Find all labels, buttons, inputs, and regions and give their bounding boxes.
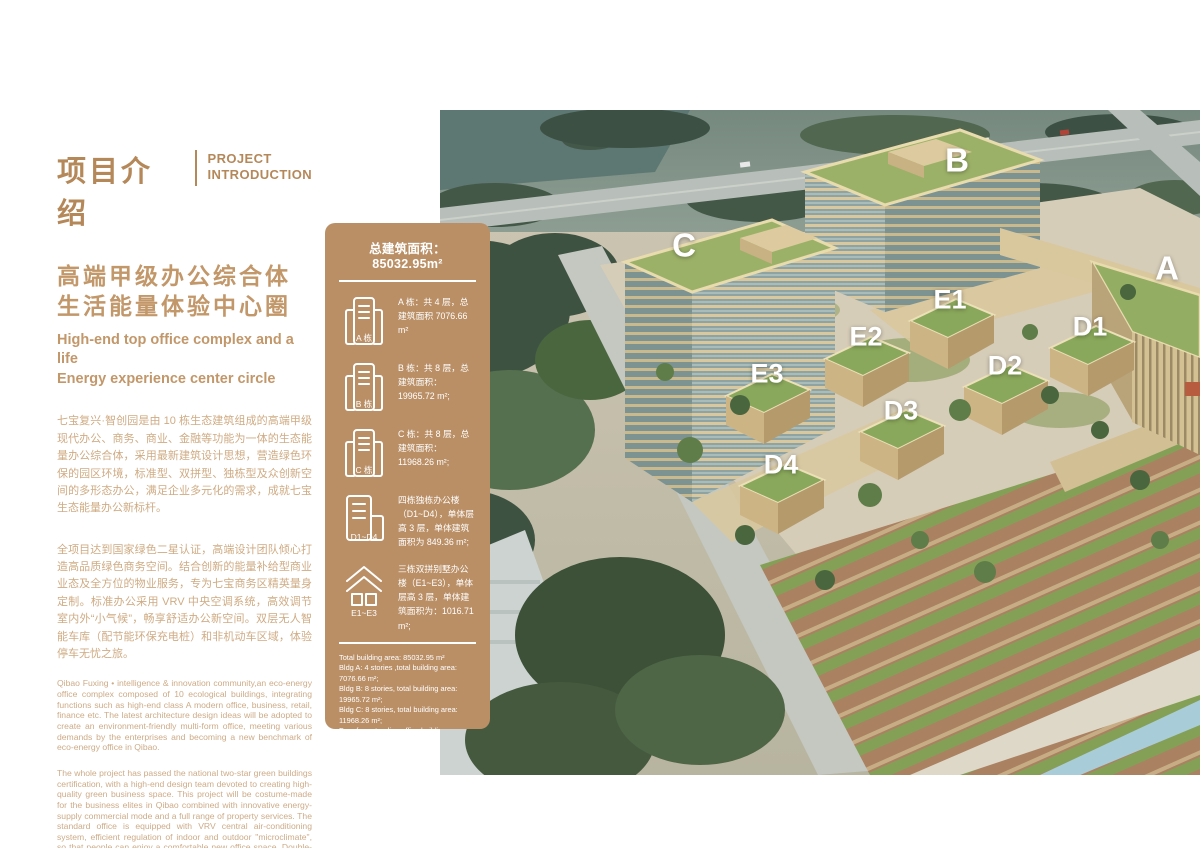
section-title-en-line1: PROJECT bbox=[208, 151, 312, 167]
tower-icon-label: A 栋 bbox=[356, 332, 372, 344]
villa-icon-label: E1~E3 bbox=[351, 608, 377, 618]
section-title: 项目介绍 PROJECT INTRODUCTION bbox=[57, 148, 312, 232]
subtitle-zh: 高端甲级办公综合体 生活能量体验中心圈 bbox=[57, 261, 312, 322]
tower-icon-label: B 栋 bbox=[356, 398, 373, 410]
subtitle-zh-line1: 高端甲级办公综合体 bbox=[57, 263, 291, 289]
twin-building-icon-label: D1~D4 bbox=[351, 532, 378, 542]
panel-divider-bottom bbox=[339, 642, 476, 644]
aerial-rendering: B C A E1 E2 E3 D1 D2 D3 D4 bbox=[440, 110, 1200, 775]
panel-item-text: 三栋双拼别墅办公楼（E1~E3），单体层高 3 层，单体建筑面积为：1016.7… bbox=[398, 562, 476, 632]
building-label-c: C bbox=[672, 229, 696, 262]
panel-item-text: A 栋：共 4 层，总建筑面积 7076.66 m² bbox=[398, 295, 476, 337]
panel-divider-top bbox=[339, 280, 476, 282]
subtitle-en: High-end top office complex and a life E… bbox=[57, 331, 312, 390]
section-title-en: PROJECT INTRODUCTION bbox=[208, 151, 312, 184]
panel-footer-line: Bldg C: 8 stories, total building area: … bbox=[339, 705, 476, 726]
subtitle-zh-line2: 生活能量体验中心圈 bbox=[57, 293, 291, 319]
paragraph-zh-2: 全项目达到国家绿色二星认证，高端设计团队倾心打造高品质绿色商务空间。结合创新的能… bbox=[57, 542, 312, 664]
building-label-e1: E1 bbox=[933, 287, 966, 314]
tower-icon-label: C 栋 bbox=[355, 464, 372, 476]
building-label-e2: E2 bbox=[849, 324, 882, 351]
panel-item-text: 四栋独栋办公楼（D1~D4），单体层高 3 层，单体建筑面积为 849.36 m… bbox=[398, 493, 476, 549]
twin-building-icon: D1~D4 bbox=[339, 492, 389, 546]
panel-item-buildings-e: E1~E3 三栋双拼别墅办公楼（E1~E3），单体层高 3 层，单体建筑面积为：… bbox=[339, 561, 476, 632]
panel-item-building-c: C 栋 C 栋：共 8 层，总建筑面积：11968.26 m²; bbox=[339, 426, 476, 480]
paragraph-en-1: Qibao Fuxing • intelligence & innovation… bbox=[57, 678, 312, 753]
subtitle-en-line2: Energy experience center circle bbox=[57, 371, 275, 387]
panel-footer-line: Bldg B: 8 stories, total building area: … bbox=[339, 684, 476, 705]
panel-item-buildings-d: D1~D4 四栋独栋办公楼（D1~D4），单体层高 3 层，单体建筑面积为 84… bbox=[339, 492, 476, 549]
panel-footer-line: Four free-standing office buildings (D1~… bbox=[339, 726, 476, 729]
building-label-d4: D4 bbox=[764, 452, 799, 479]
building-label-d1: D1 bbox=[1073, 314, 1108, 341]
tower-icon: B 栋 bbox=[339, 360, 389, 414]
brochure-page: 项目介绍 PROJECT INTRODUCTION 高端甲级办公综合体 生活能量… bbox=[0, 0, 1200, 848]
panel-item-building-b: B 栋 B 栋：共 8 层，总建筑面积：19965.72 m²; bbox=[339, 360, 476, 414]
paragraph-zh-1: 七宝复兴·智创园是由 10 栋生态建筑组成的高端甲级现代办公、商务、商业、金融等… bbox=[57, 413, 312, 517]
panel-header: 总建筑面积：85032.95m² bbox=[339, 238, 476, 271]
panel-item-text: C 栋：共 8 层，总建筑面积：11968.26 m²; bbox=[398, 427, 476, 469]
paragraph-en-2: The whole project has passed the nationa… bbox=[57, 768, 312, 848]
tower-icon: C 栋 bbox=[339, 426, 389, 480]
building-label-d2: D2 bbox=[988, 353, 1023, 380]
section-title-en-line2: INTRODUCTION bbox=[208, 167, 312, 183]
section-title-zh: 项目介绍 bbox=[57, 148, 184, 232]
title-divider bbox=[195, 150, 197, 186]
building-label-e3: E3 bbox=[750, 361, 783, 388]
building-label-d3: D3 bbox=[884, 398, 919, 425]
aerial-rendering-art bbox=[440, 110, 1200, 775]
panel-footer-line: Total building area: 85032.95 m² bbox=[339, 653, 476, 664]
panel-item-building-a: A 栋 A 栋：共 4 层，总建筑面积 7076.66 m² bbox=[339, 294, 476, 348]
intro-column: 项目介绍 PROJECT INTRODUCTION 高端甲级办公综合体 生活能量… bbox=[57, 148, 312, 848]
villa-icon: E1~E3 bbox=[339, 561, 389, 615]
building-label-a: A bbox=[1155, 252, 1179, 285]
area-info-panel: 总建筑面积：85032.95m² A 栋 A 栋：共 4 层，总建筑面积 707… bbox=[325, 223, 490, 729]
subtitle-en-line1: High-end top office complex and a life bbox=[57, 332, 294, 368]
panel-footer-line: Bldg A: 4 stories ,total building area: … bbox=[339, 663, 476, 684]
panel-item-text: B 栋：共 8 层，总建筑面积：19965.72 m²; bbox=[398, 361, 476, 403]
tower-icon: A 栋 bbox=[339, 294, 389, 348]
building-label-b: B bbox=[945, 144, 969, 177]
panel-footer: Total building area: 85032.95 m² Bldg A:… bbox=[339, 653, 476, 729]
